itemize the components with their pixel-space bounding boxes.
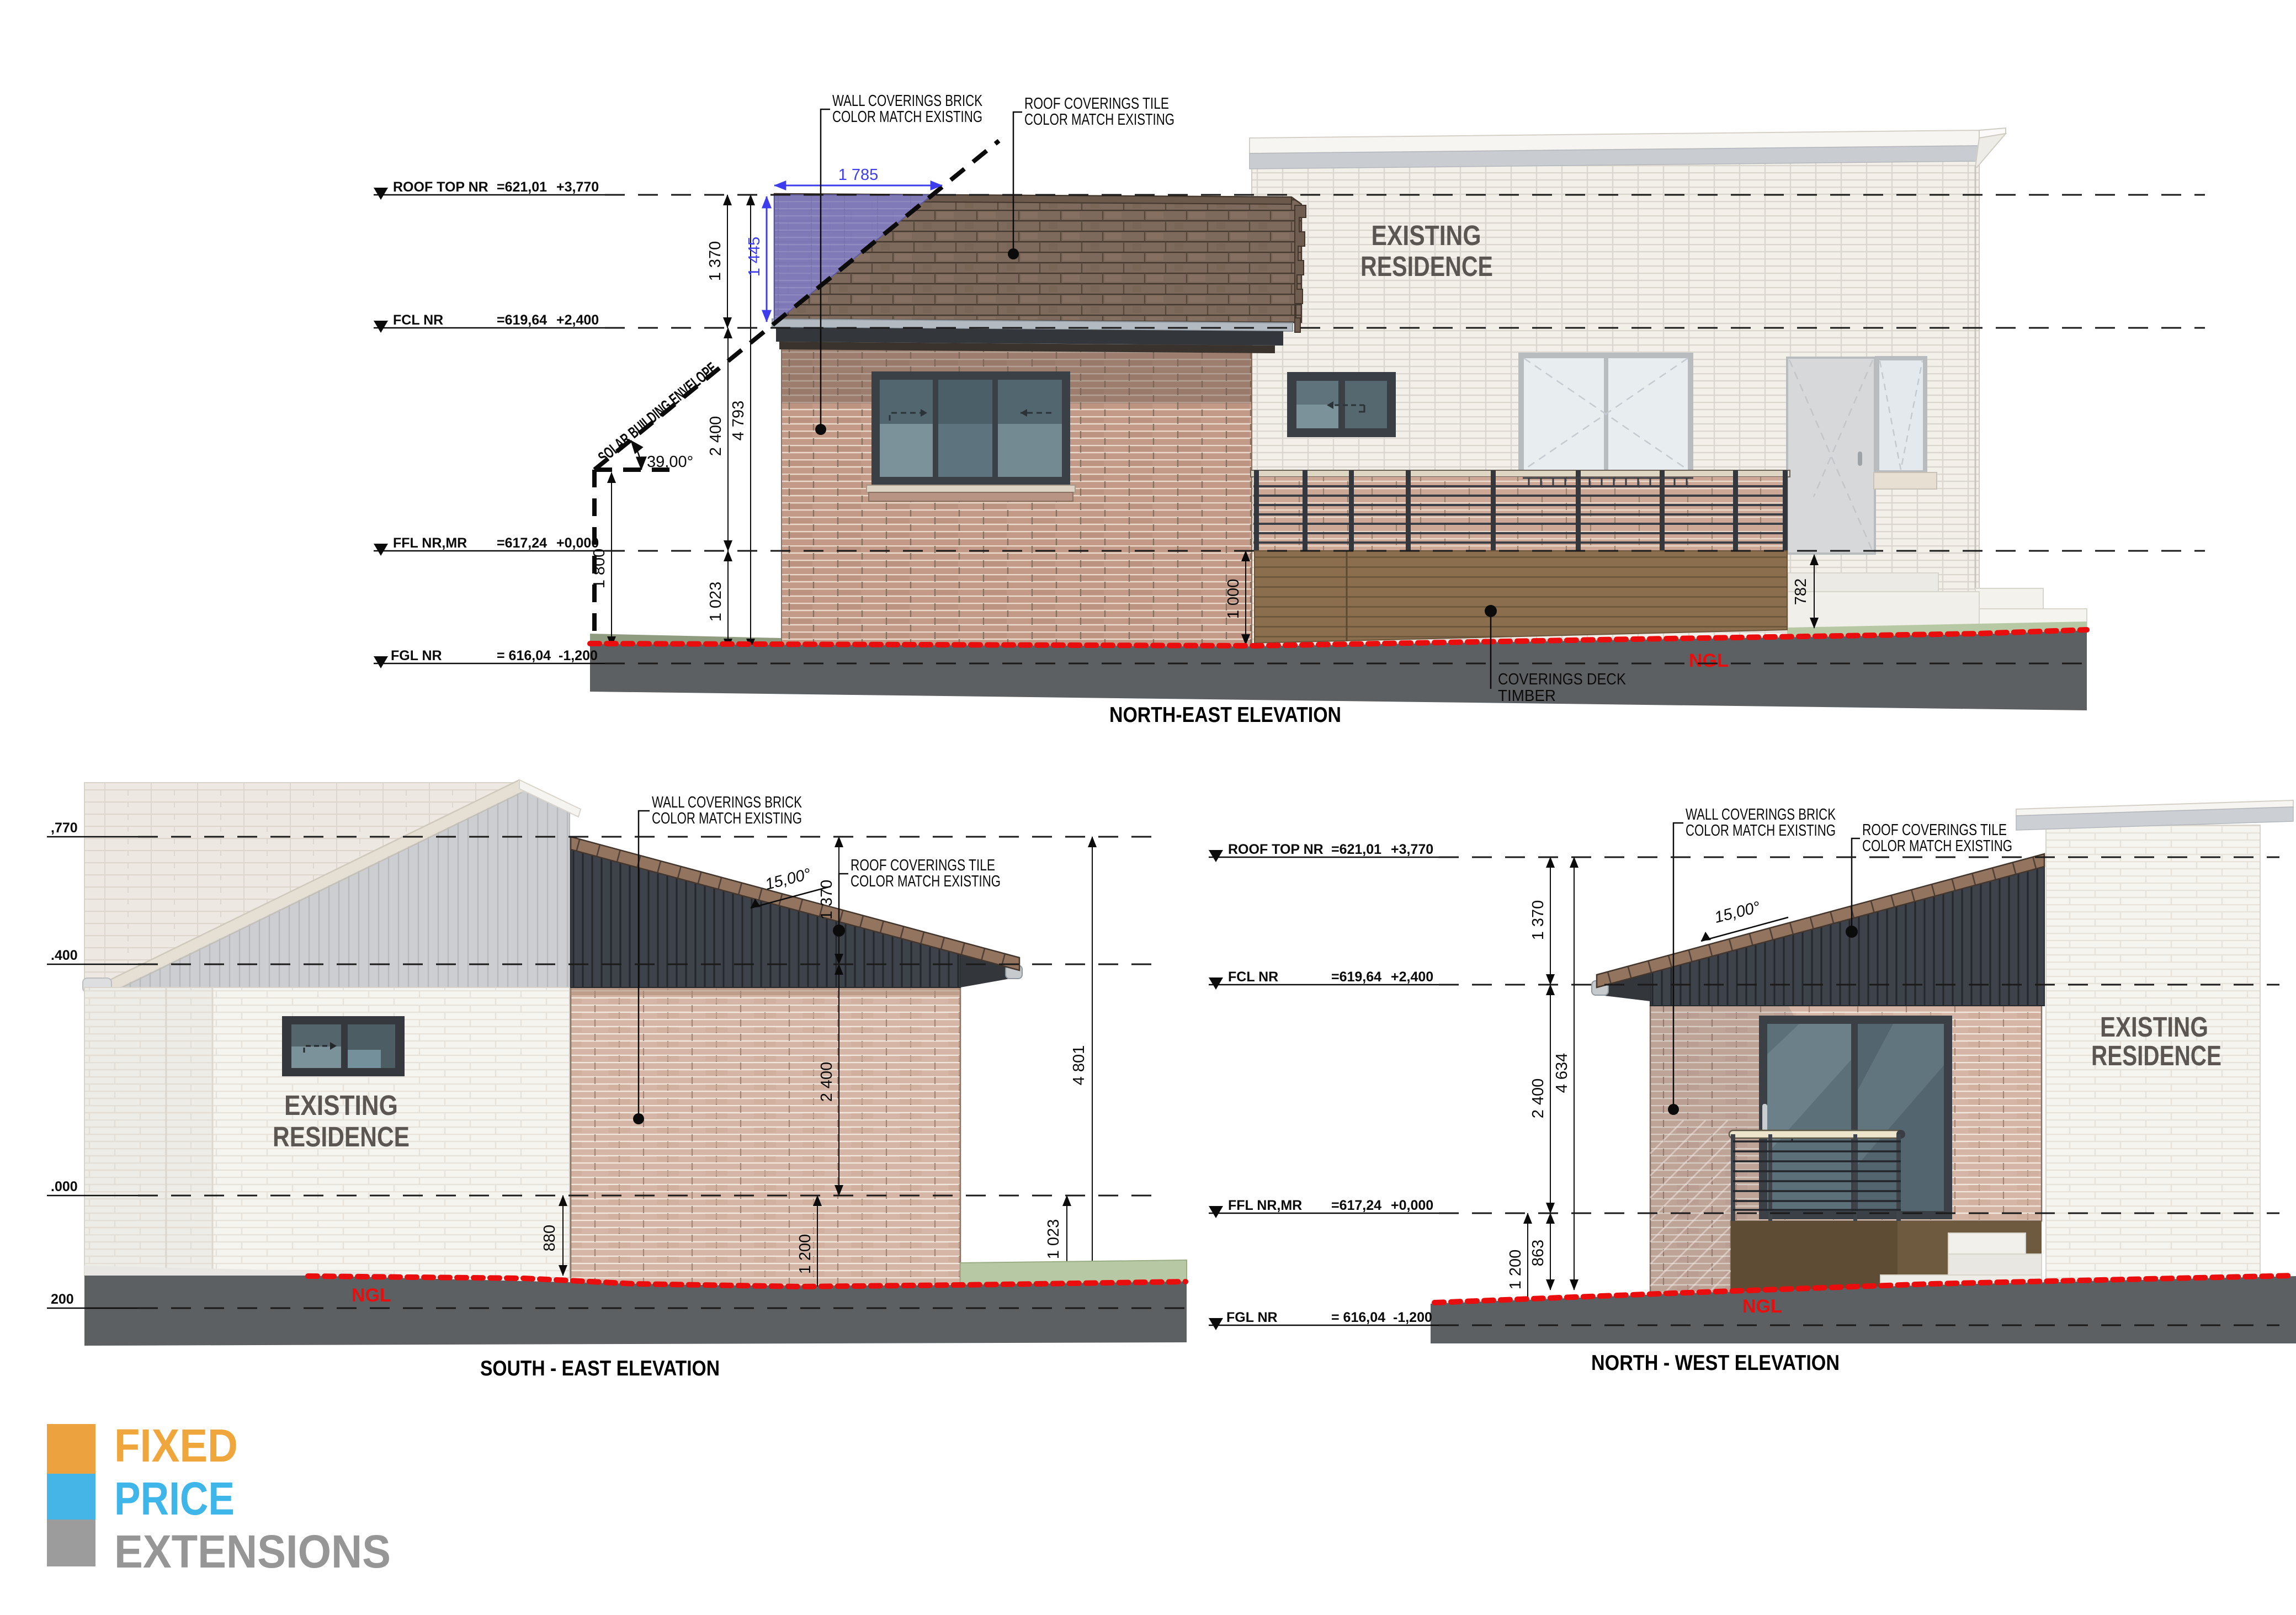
svg-text:+0,000: +0,000: [556, 535, 599, 551]
svg-text:= 616,04: = 616,04: [497, 648, 551, 663]
svg-text:1 800: 1 800: [591, 549, 608, 589]
svg-text:=619,64: =619,64: [1331, 969, 1381, 985]
svg-text:1 445: 1 445: [746, 237, 763, 277]
svg-text:ROOF TOP NR: ROOF TOP NR: [1228, 842, 1324, 857]
svg-text:NORTH - WEST ELEVATION: NORTH - WEST ELEVATION: [1591, 1351, 1840, 1375]
svg-text:1 200: 1 200: [1507, 1250, 1524, 1290]
svg-text:FCL NR: FCL NR: [1228, 969, 1278, 985]
svg-text:+3,770: +3,770: [556, 179, 599, 195]
svg-text:FIXED: FIXED: [114, 1420, 238, 1471]
svg-text:SOUTH - EAST ELEVATION: SOUTH - EAST ELEVATION: [480, 1357, 720, 1380]
svg-text:COLOR MATCH EXISTING: COLOR MATCH EXISTING: [1686, 822, 1836, 840]
svg-text:NGL: NGL: [1742, 1296, 1782, 1317]
svg-text:EXISTING: EXISTING: [2100, 1011, 2208, 1043]
svg-text:COLOR MATCH EXISTING: COLOR MATCH EXISTING: [832, 108, 982, 126]
svg-text:COLOR MATCH EXISTING: COLOR MATCH EXISTING: [1862, 837, 2012, 855]
svg-text:4 634: 4 634: [1553, 1053, 1571, 1093]
svg-text:COLOR MATCH EXISTING: COLOR MATCH EXISTING: [652, 810, 802, 827]
svg-text:ROOF COVERINGS TILE: ROOF COVERINGS TILE: [851, 857, 995, 874]
svg-text:WALL COVERINGS BRICK: WALL COVERINGS BRICK: [1686, 806, 1836, 824]
svg-text:1 370: 1 370: [818, 880, 836, 920]
svg-text:1 785: 1 785: [838, 166, 879, 184]
svg-text:-1,200: -1,200: [559, 648, 598, 663]
svg-text:COLOR MATCH EXISTING: COLOR MATCH EXISTING: [851, 873, 1001, 890]
svg-text:.400: .400: [51, 948, 78, 963]
svg-text:COVERINGS DECK: COVERINGS DECK: [1498, 671, 1627, 688]
svg-text:EXISTING: EXISTING: [1372, 220, 1481, 251]
svg-text:=619,64: =619,64: [497, 312, 547, 328]
svg-text:1 023: 1 023: [1045, 1219, 1062, 1260]
svg-text:COLOR MATCH EXISTING: COLOR MATCH EXISTING: [1024, 111, 1174, 129]
svg-text:FFL NR,MR: FFL NR,MR: [393, 535, 467, 551]
svg-text:2 400: 2 400: [1529, 1079, 1547, 1119]
svg-text:EXTENSIONS: EXTENSIONS: [114, 1526, 391, 1577]
svg-text:.000: .000: [51, 1179, 78, 1194]
svg-text:FGL NR: FGL NR: [391, 648, 442, 663]
svg-text:1 000: 1 000: [1225, 579, 1242, 619]
svg-text:880: 880: [541, 1225, 559, 1251]
svg-text:39,00°: 39,00°: [647, 453, 693, 471]
svg-text:+2,400: +2,400: [1391, 969, 1433, 985]
svg-text:WALL COVERINGS BRICK: WALL COVERINGS BRICK: [832, 92, 982, 110]
svg-text:782: 782: [1792, 578, 1810, 605]
svg-text:ROOF COVERINGS TILE: ROOF COVERINGS TILE: [1862, 821, 2007, 839]
svg-text:NGL: NGL: [1689, 650, 1729, 671]
svg-text:1 023: 1 023: [707, 582, 725, 622]
svg-text:FFL NR,MR: FFL NR,MR: [1228, 1198, 1302, 1213]
svg-text:200: 200: [51, 1292, 74, 1307]
svg-text:FCL NR: FCL NR: [393, 312, 443, 328]
svg-text:ROOF COVERINGS TILE: ROOF COVERINGS TILE: [1024, 95, 1169, 113]
svg-text:+3,770: +3,770: [1391, 842, 1433, 857]
svg-text:2 400: 2 400: [818, 1062, 836, 1102]
svg-text:1 370: 1 370: [706, 241, 724, 281]
svg-text:NORTH-EAST ELEVATION: NORTH-EAST ELEVATION: [1109, 703, 1341, 727]
svg-text:RESIDENCE: RESIDENCE: [2091, 1040, 2221, 1071]
svg-text:= 616,04: = 616,04: [1331, 1310, 1385, 1325]
svg-text:RESIDENCE: RESIDENCE: [273, 1121, 410, 1152]
svg-text:PRICE: PRICE: [114, 1473, 235, 1524]
svg-text:=617,24: =617,24: [1331, 1198, 1381, 1213]
svg-text:ROOF TOP NR: ROOF TOP NR: [393, 179, 488, 195]
svg-text:2 400: 2 400: [707, 416, 725, 456]
svg-text:1 200: 1 200: [796, 1234, 814, 1274]
svg-text:-1,200: -1,200: [1393, 1310, 1432, 1325]
svg-text:EXISTING: EXISTING: [284, 1090, 398, 1121]
svg-text:=621,01: =621,01: [1331, 842, 1381, 857]
svg-text:WALL COVERINGS BRICK: WALL COVERINGS BRICK: [652, 794, 802, 811]
svg-text:+2,400: +2,400: [556, 312, 599, 328]
svg-text:4 793: 4 793: [730, 401, 747, 441]
svg-text:RESIDENCE: RESIDENCE: [1360, 251, 1493, 282]
svg-text:+0,000: +0,000: [1391, 1198, 1433, 1213]
svg-text:=621,01: =621,01: [497, 179, 547, 195]
svg-text:=617,24: =617,24: [497, 535, 547, 551]
svg-text:4 801: 4 801: [1070, 1045, 1088, 1086]
svg-text:,770: ,770: [51, 820, 78, 836]
svg-text:NGL: NGL: [352, 1285, 391, 1306]
svg-text:FGL NR: FGL NR: [1226, 1310, 1278, 1325]
svg-text:863: 863: [1529, 1240, 1547, 1266]
svg-text:1 370: 1 370: [1529, 900, 1547, 941]
svg-text:TIMBER: TIMBER: [1498, 687, 1556, 705]
